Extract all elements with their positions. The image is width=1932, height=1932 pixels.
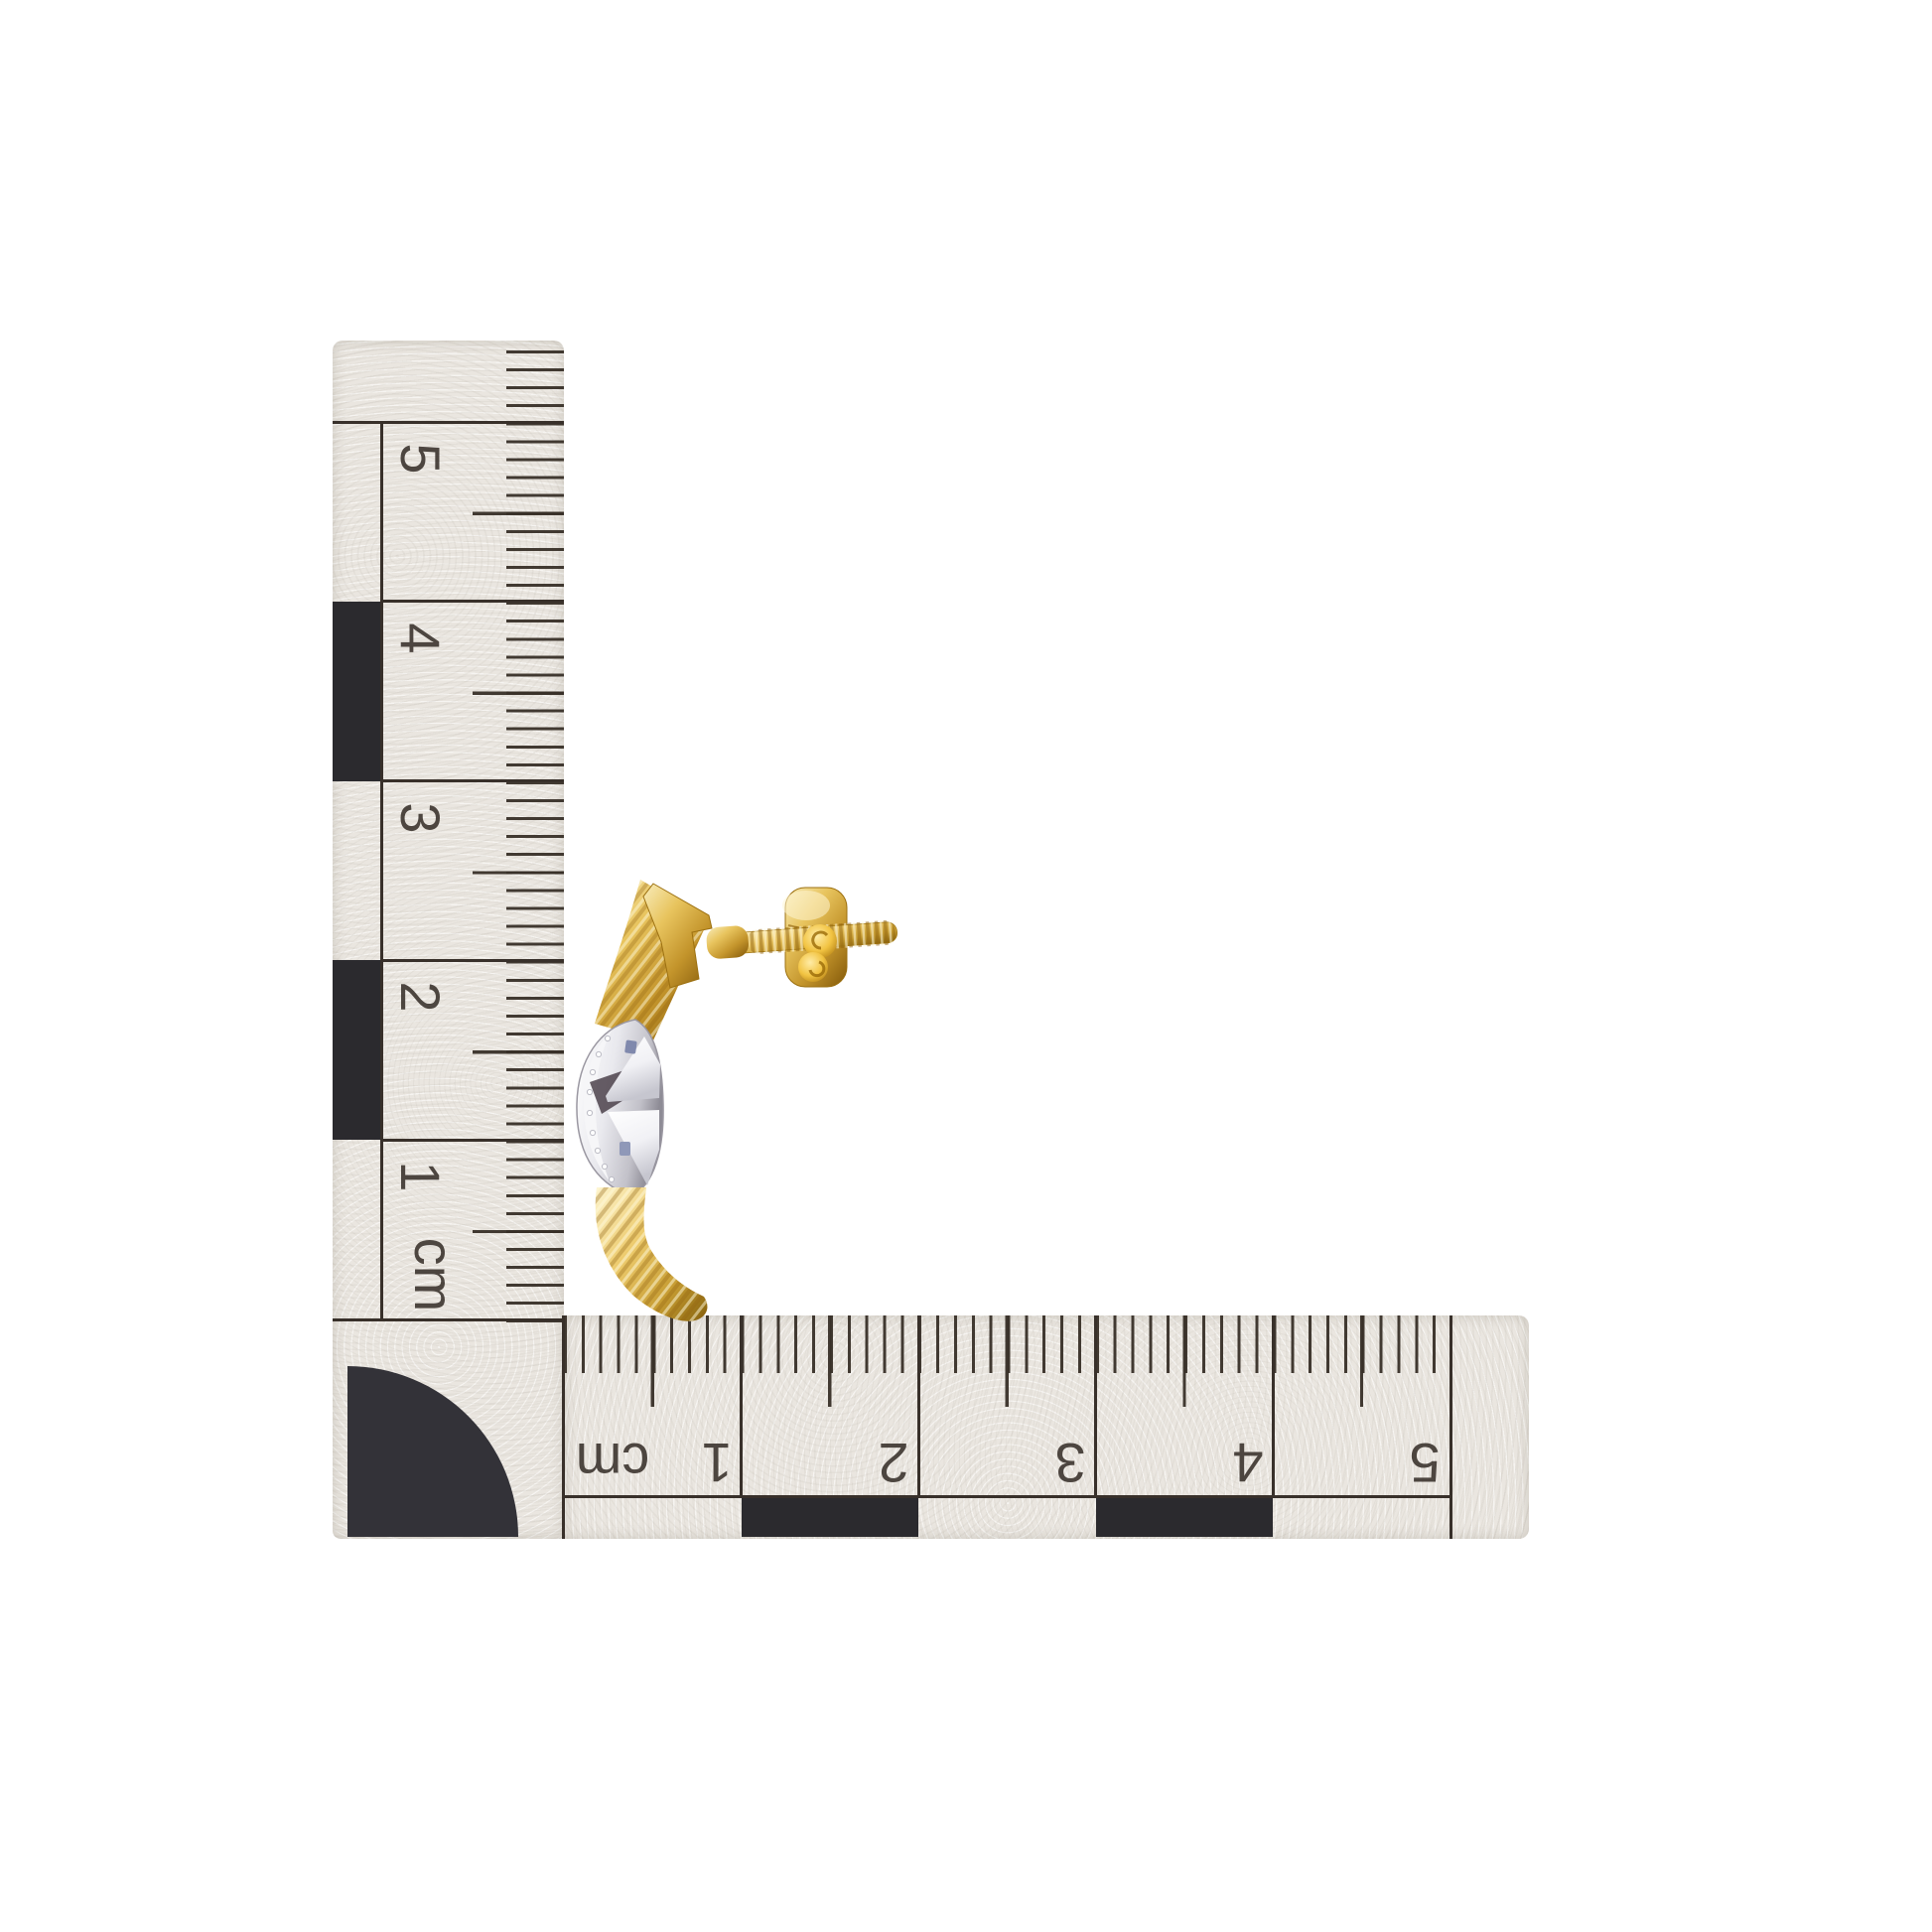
earring-diamond-glint-top [624, 1039, 637, 1053]
horizontal-ruler-0cm-line [562, 1315, 565, 1539]
horizontal-ruler-2cm-line [917, 1315, 920, 1496]
vertical-ruler-label-4: 4 [392, 622, 448, 653]
vertical-ruler-label-3: 3 [392, 802, 448, 833]
earring-diamond-glint-bottom [620, 1142, 630, 1156]
vertical-ruler-label-1: 1 [392, 1161, 448, 1191]
vertical-ruler-unit-label: cm [406, 1238, 462, 1312]
horizontal-ruler-4cm-line [1272, 1315, 1275, 1496]
earring-white-gold-section [577, 1020, 663, 1196]
horizontal-ruler-3cm-line [1094, 1315, 1097, 1496]
horizontal-ruler-label-5: 5 [1409, 1435, 1440, 1490]
horizontal-ruler-black-block-1-2 [742, 1498, 919, 1537]
vertical-ruler-3cm-line [380, 779, 564, 782]
vertical-ruler-label-5: 5 [392, 443, 448, 474]
horizontal-ruler-label-3: 3 [1054, 1435, 1085, 1490]
horizontal-ruler-unit-label: cm [576, 1435, 650, 1490]
vertical-ruler-1cm-line [380, 1139, 564, 1142]
vertical-ruler-0cm-line [333, 1318, 564, 1321]
horizontal-ruler-label-4: 4 [1232, 1435, 1263, 1490]
photo-canvas: 5 4 3 2 1 cm cm 1 2 3 4 5 [0, 0, 1932, 1932]
earring-post-collar [706, 925, 750, 960]
vertical-ruler-2cm-line [380, 959, 564, 962]
earring-tail [596, 1187, 708, 1321]
vertical-ruler-label-2: 2 [392, 981, 448, 1012]
vertical-ruler-4cm-line [380, 600, 564, 603]
horizontal-ruler-black-block-3-4 [1096, 1498, 1274, 1537]
vertical-ruler-black-block-2-1 [333, 960, 380, 1140]
vertical-ruler-black-block-4-3 [333, 602, 380, 781]
horizontal-ruler-number-line [564, 1495, 1450, 1498]
vertical-ruler-5cm-line [333, 421, 564, 424]
horizontal-ruler-1cm-line [740, 1315, 743, 1496]
earring [551, 869, 908, 1335]
horizontal-ruler-label-2: 2 [878, 1435, 908, 1490]
horizontal-ruler-label-1: 1 [701, 1435, 732, 1490]
horizontal-ruler-5cm-line [1449, 1315, 1452, 1539]
